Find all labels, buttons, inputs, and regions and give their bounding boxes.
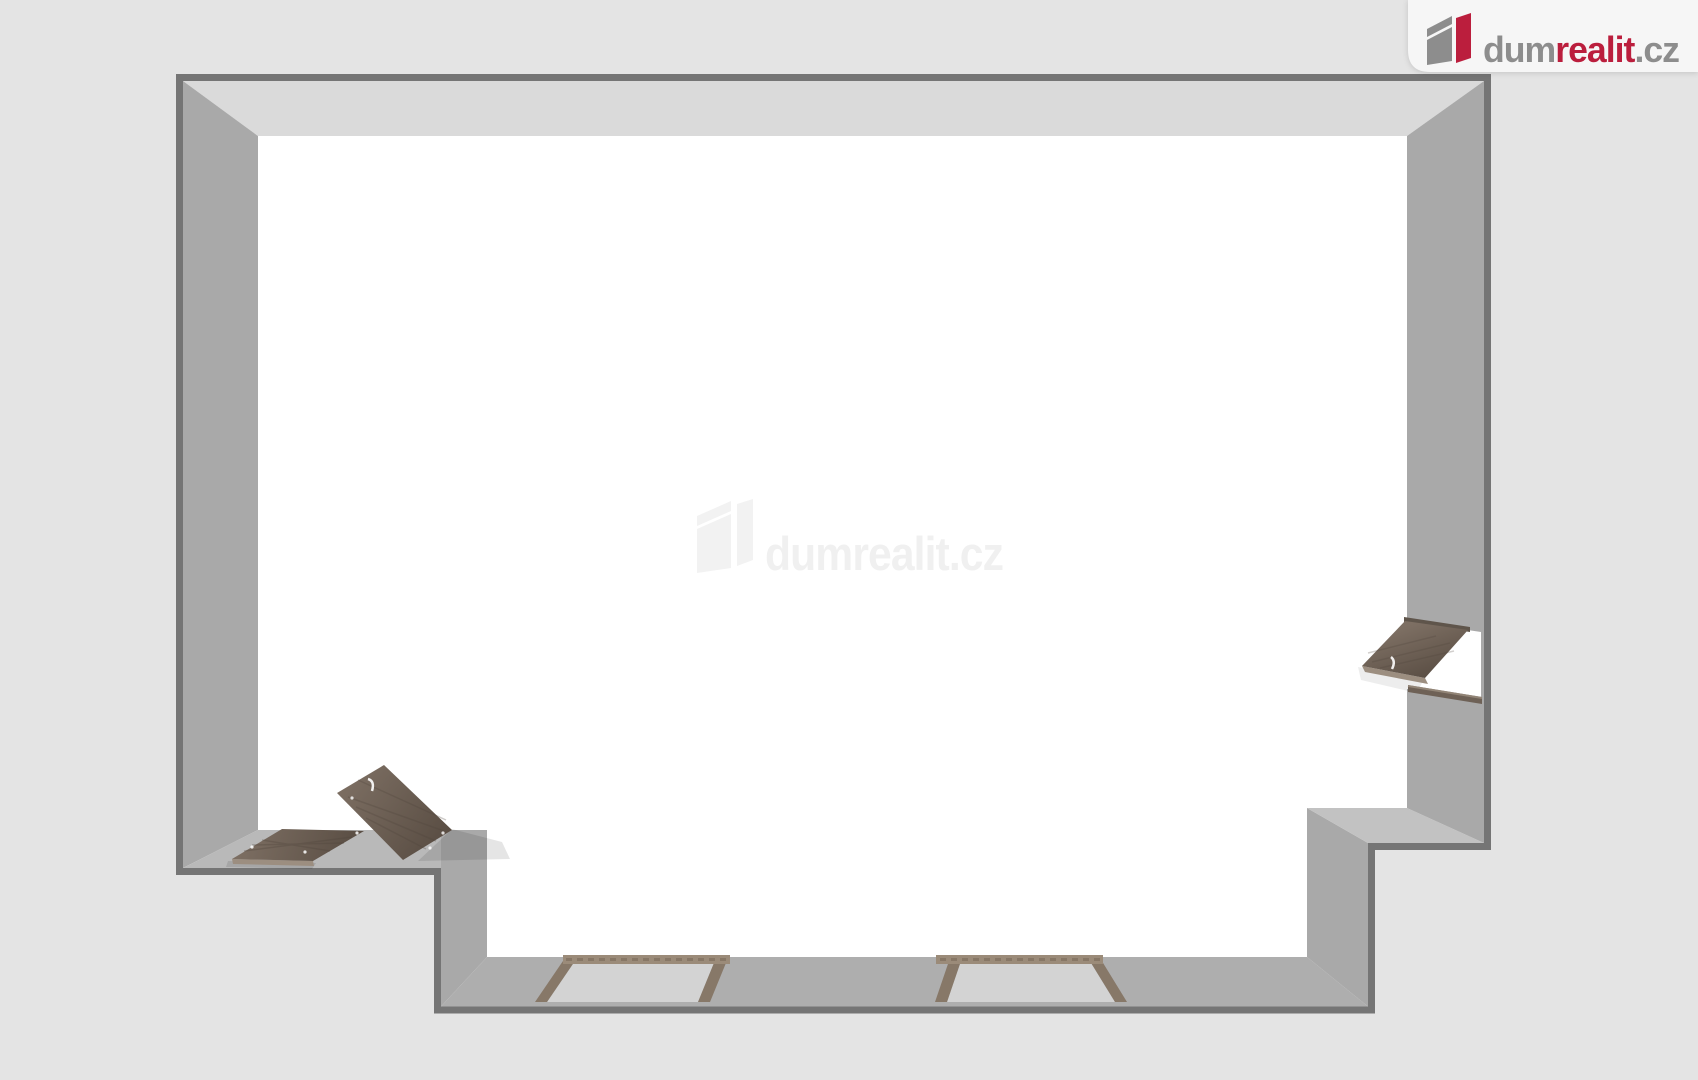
wall-left-face: [183, 81, 258, 868]
window-1: [535, 955, 730, 1002]
floor-plan-svg: dumrealit.cz: [0, 0, 1698, 1080]
brand-wordmark: dumrealit.cz: [1483, 29, 1679, 70]
wall-top-face: [183, 81, 1484, 136]
watermark-text: dumrealit.cz: [765, 527, 1003, 580]
brand-card: dumrealit.cz: [1408, 0, 1698, 72]
wall-right-face: [1407, 81, 1484, 843]
window-2: [935, 955, 1127, 1002]
brand-wordmark-prefix: dum: [1483, 29, 1555, 70]
window-2-glass: [947, 958, 1115, 1002]
brand-wordmark-suffix: .cz: [1634, 29, 1679, 70]
brand-wordmark-accent: realit: [1555, 29, 1635, 70]
floor-plan-page: dumrealit.cz: [0, 0, 1698, 1080]
